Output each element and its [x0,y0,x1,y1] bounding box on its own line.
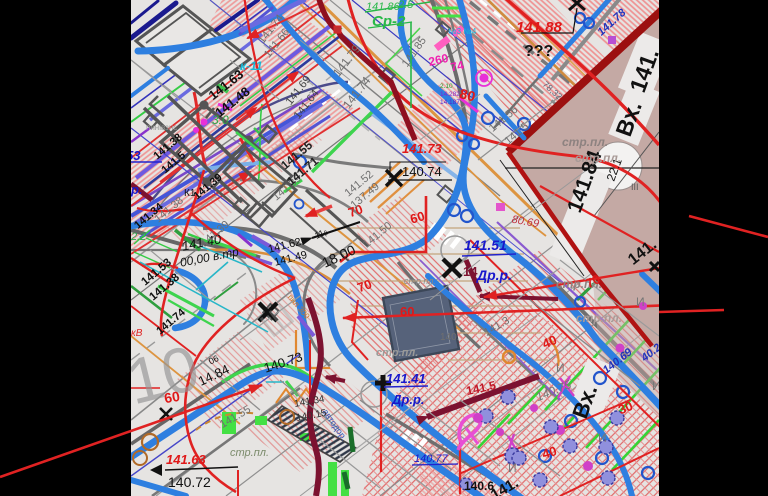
svg-text:???: ??? [524,43,553,60]
svg-text:2.10: 2.10 [440,83,453,90]
svg-text:стр.пл.: стр.пл. [562,135,608,149]
svg-text:14: 14 [463,264,478,279]
svg-text:стр.пл.: стр.пл. [230,447,269,459]
svg-text:14.282: 14.282 [440,91,460,98]
svg-text:пинівзнс: пинівзнс [146,123,177,132]
svg-text:И: И [598,431,607,445]
svg-text:140.77: 140.77 [414,453,449,465]
svg-text:№3 №4: №3 №4 [448,27,477,36]
svg-text:стр.пл.: стр.пл. [575,151,621,165]
svg-text:И: И [508,461,517,475]
svg-text:140.6: 140.6 [464,479,494,493]
svg-text:И: И [556,361,565,375]
svg-text:И: И [636,295,645,309]
svg-text:141.51: 141.51 [464,237,507,253]
svg-text:141.73: 141.73 [402,141,443,156]
svg-text:140.74: 140.74 [402,164,442,179]
svg-text:3.0: 3.0 [212,113,229,127]
svg-text:Др.р.: Др.р. [391,392,425,407]
svg-text:к-11: к-11 [240,59,263,73]
svg-text:стр.пл.: стр.пл. [404,276,436,286]
svg-text:140.: 140. [440,332,459,343]
svg-text:кВ: кВ [131,328,143,339]
svg-text:Др.р.: Др.р. [476,267,512,283]
svg-text:стр.пл.: стр.пл. [376,347,418,359]
svg-text:14.187: 14.187 [440,99,460,106]
svg-text:Ср-2: Ср-2 [372,13,406,30]
svg-text:141.88: 141.88 [516,19,563,36]
svg-text:2.2: 2.2 [130,231,146,243]
svg-text:141.63: 141.63 [166,452,207,467]
svg-text:140.72: 140.72 [168,474,211,490]
svg-text:III: III [631,182,639,192]
svg-text:141.41: 141.41 [386,371,426,386]
